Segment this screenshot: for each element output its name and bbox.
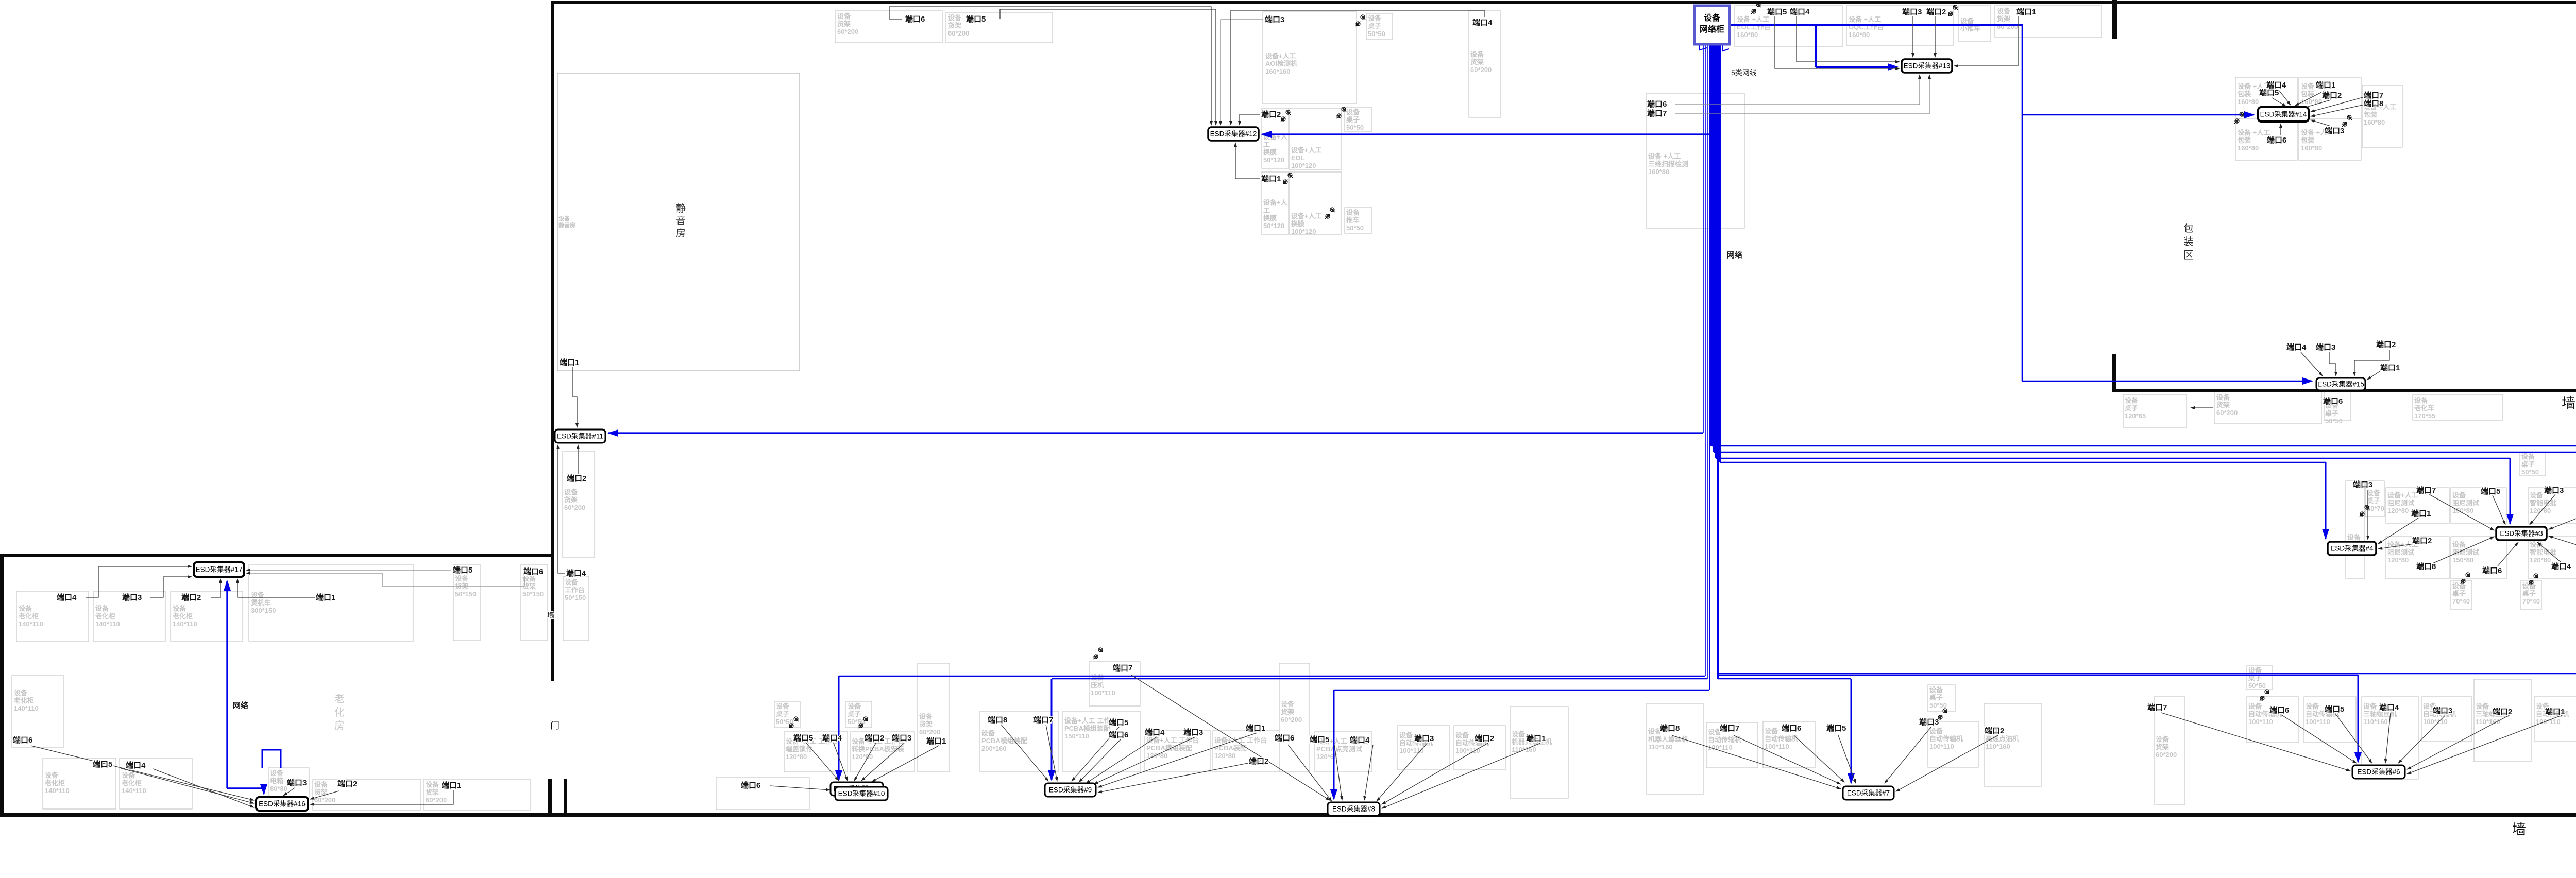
svg-text:端口8: 端口8 — [1660, 724, 1680, 733]
svg-text:端口5: 端口5 — [2325, 704, 2344, 714]
svg-text:端口6: 端口6 — [1782, 724, 1801, 733]
svg-text:端口5: 端口5 — [93, 760, 112, 769]
svg-text:端口6: 端口6 — [2269, 705, 2289, 715]
svg-text:ESD采集器#10: ESD采集器#10 — [838, 790, 885, 798]
svg-text:端口5: 端口5 — [2481, 487, 2500, 496]
svg-text:端口1: 端口1 — [2380, 363, 2400, 372]
svg-text:端口2: 端口2 — [181, 593, 201, 602]
svg-text:端口2: 端口2 — [1985, 726, 2004, 735]
svg-text:网络柜: 网络柜 — [1700, 24, 1724, 34]
svg-text:端口2: 端口2 — [2322, 91, 2342, 100]
svg-text:端口6: 端口6 — [2482, 566, 2502, 575]
svg-text:端口2: 端口2 — [337, 779, 357, 788]
svg-text:ESD采集器#15: ESD采集器#15 — [2317, 381, 2364, 388]
svg-text:端口7: 端口7 — [2416, 486, 2436, 495]
svg-text:端口2: 端口2 — [865, 733, 884, 743]
svg-text:端口1: 端口1 — [1526, 734, 1546, 743]
svg-text:端口8: 端口8 — [2416, 562, 2436, 571]
svg-text:端口5: 端口5 — [966, 14, 986, 24]
svg-text:端口3: 端口3 — [892, 733, 911, 743]
svg-text:ESD采集器#9: ESD采集器#9 — [1049, 786, 1092, 794]
svg-text:端口1: 端口1 — [2016, 7, 2036, 16]
svg-text:端口4: 端口4 — [822, 733, 842, 743]
svg-text:端口3: 端口3 — [1919, 717, 1939, 727]
svg-text:端口7: 端口7 — [1113, 663, 1132, 673]
svg-text:端口3: 端口3 — [2433, 706, 2452, 715]
svg-text:网络: 网络 — [1727, 250, 1742, 260]
svg-text:端口3: 端口3 — [2353, 480, 2372, 489]
svg-text:端口7: 端口7 — [1720, 724, 1739, 733]
svg-text:静音房: 静音房 — [676, 203, 686, 239]
svg-text:端口1: 端口1 — [1246, 724, 1265, 733]
svg-text:端口6: 端口6 — [13, 735, 32, 745]
svg-text:老化房: 老化房 — [334, 693, 345, 732]
svg-text:端口1: 端口1 — [560, 358, 579, 367]
svg-text:端口6: 端口6 — [523, 567, 543, 576]
svg-text:端口7: 端口7 — [2147, 703, 2167, 712]
svg-text:端口3: 端口3 — [122, 593, 142, 602]
svg-text:端口2: 端口2 — [1475, 734, 1494, 743]
svg-text:端口5: 端口5 — [453, 565, 472, 575]
svg-text:端口5: 端口5 — [1767, 7, 1787, 16]
svg-text:端口8: 端口8 — [988, 715, 1007, 725]
svg-text:ESD采集器#3: ESD采集器#3 — [2500, 530, 2543, 538]
svg-text:端口5: 端口5 — [1310, 735, 1329, 744]
svg-text:端口7: 端口7 — [2364, 91, 2383, 100]
svg-text:门: 门 — [550, 720, 560, 731]
svg-text:端口1: 端口1 — [442, 781, 461, 790]
svg-text:ESD采集器#16: ESD采集器#16 — [259, 800, 306, 808]
svg-text:端口3: 端口3 — [1902, 7, 1922, 16]
svg-text:墙: 墙 — [2562, 395, 2575, 411]
svg-text:端口4: 端口4 — [566, 569, 586, 578]
svg-text:端口4: 端口4 — [2551, 562, 2571, 571]
svg-text:端口4: 端口4 — [1790, 7, 1810, 16]
svg-text:端口6: 端口6 — [2267, 135, 2286, 145]
svg-text:端口1: 端口1 — [926, 736, 946, 746]
svg-text:端口6: 端口6 — [1647, 99, 1667, 109]
svg-text:端口1: 端口1 — [316, 593, 335, 602]
svg-text:端口6: 端口6 — [1275, 733, 1294, 743]
svg-text:端口3: 端口3 — [1414, 734, 1434, 743]
svg-text:ESD采集器#17: ESD采集器#17 — [196, 566, 243, 574]
svg-text:端口7: 端口7 — [1033, 715, 1053, 725]
svg-text:设备: 设备 — [1704, 13, 1721, 23]
svg-text:端口2: 端口2 — [2376, 340, 2396, 349]
svg-text:端口3: 端口3 — [2544, 486, 2564, 495]
svg-text:端口3: 端口3 — [2316, 342, 2335, 352]
svg-text:端口5: 端口5 — [1109, 718, 1128, 727]
svg-text:网络: 网络 — [233, 701, 248, 710]
svg-text:端口2: 端口2 — [1249, 756, 1268, 766]
svg-text:ESD采集器#14: ESD采集器#14 — [2260, 111, 2307, 118]
svg-text:ESD采集器#11: ESD采集器#11 — [557, 433, 603, 440]
svg-text:端口4: 端口4 — [57, 593, 77, 602]
svg-text:端口6: 端口6 — [741, 781, 760, 790]
svg-text:端口4: 端口4 — [1145, 728, 1165, 737]
svg-text:端口4: 端口4 — [2286, 342, 2307, 352]
svg-text:端口1: 端口1 — [2545, 707, 2565, 716]
svg-text:端口2: 端口2 — [1261, 110, 1281, 119]
svg-text:端口1: 端口1 — [2316, 80, 2335, 90]
svg-text:ESD采集器#12: ESD采集器#12 — [1210, 130, 1257, 138]
svg-text:ESD采集器#8: ESD采集器#8 — [1332, 805, 1375, 813]
svg-text:端口5: 端口5 — [1826, 724, 1846, 733]
svg-text:端口5: 端口5 — [793, 733, 813, 743]
svg-text:端口2: 端口2 — [1926, 7, 1946, 16]
svg-text:包装区: 包装区 — [2183, 222, 2194, 261]
svg-text:端口2: 端口2 — [2493, 707, 2512, 716]
svg-text:端口6: 端口6 — [2323, 397, 2343, 406]
svg-text:端口2: 端口2 — [2412, 536, 2432, 545]
svg-text:ESD采集器#4: ESD采集器#4 — [2330, 545, 2374, 553]
svg-text:端口2: 端口2 — [567, 474, 586, 483]
svg-text:端口4: 端口4 — [126, 761, 146, 770]
svg-text:端口7: 端口7 — [1647, 109, 1667, 118]
svg-text:ESD采集器#6: ESD采集器#6 — [2357, 768, 2400, 776]
svg-text:墙: 墙 — [2512, 822, 2526, 837]
svg-text:ESD采集器#13: ESD采集器#13 — [1904, 62, 1951, 70]
svg-text:端口1: 端口1 — [1261, 174, 1281, 183]
svg-text:端口3: 端口3 — [1265, 15, 1284, 24]
svg-text:端口3: 端口3 — [1183, 728, 1203, 737]
svg-text:端口3: 端口3 — [2325, 126, 2344, 135]
svg-text:端口6: 端口6 — [1109, 730, 1128, 739]
svg-text:端口5: 端口5 — [2259, 88, 2279, 97]
svg-text:墙: 墙 — [547, 611, 554, 619]
svg-text:端口8: 端口8 — [2364, 99, 2383, 108]
svg-text:端口3: 端口3 — [287, 778, 307, 787]
svg-text:ESD采集器#7: ESD采集器#7 — [1847, 789, 1890, 797]
svg-text:5类网线: 5类网线 — [1731, 68, 1757, 77]
svg-text:端口4: 端口4 — [1350, 735, 1370, 745]
svg-text:端口4: 端口4 — [1472, 18, 1493, 27]
svg-text:端口1: 端口1 — [2411, 509, 2431, 518]
svg-text:端口6: 端口6 — [905, 14, 925, 24]
svg-text:端口4: 端口4 — [2379, 703, 2399, 712]
